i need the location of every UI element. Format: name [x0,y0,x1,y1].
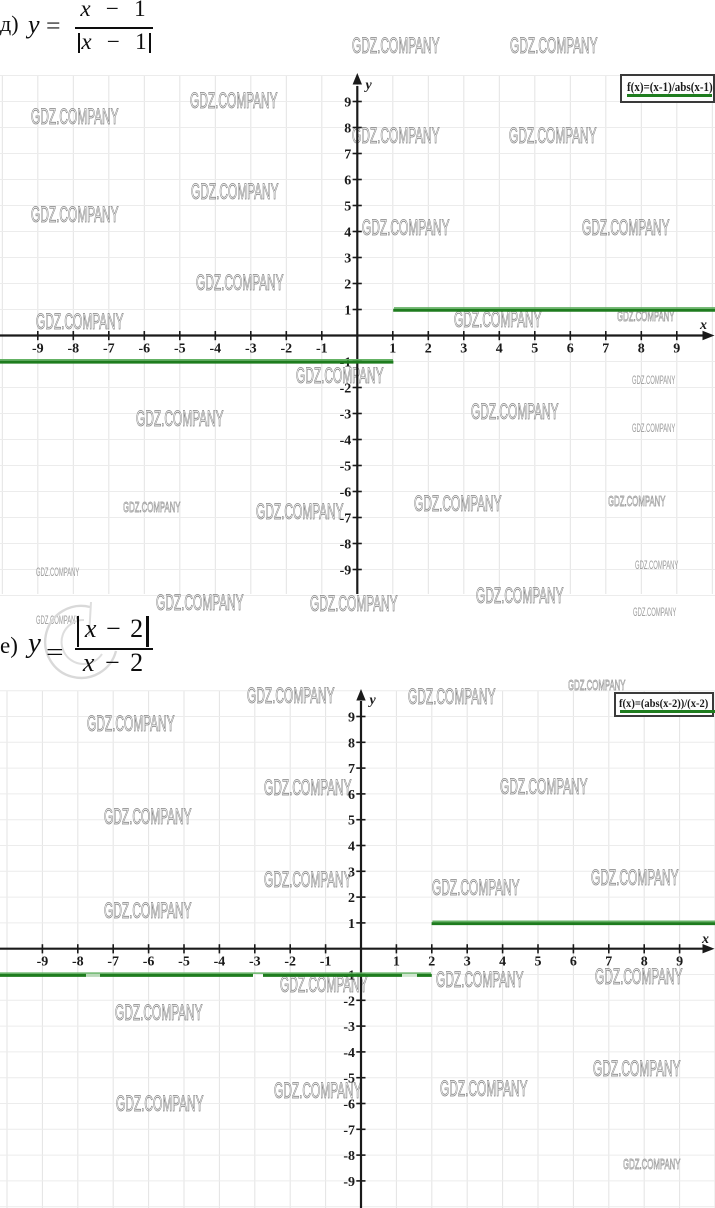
svg-text:6: 6 [570,955,577,970]
svg-text:2: 2 [425,342,432,357]
svg-text:4: 4 [496,342,503,357]
svg-text:-4: -4 [214,955,226,970]
svg-text:x: x [699,318,707,333]
svg-text:-6: -6 [340,486,352,501]
svg-text:2: 2 [428,955,435,970]
svg-text:4: 4 [344,226,351,241]
svg-text:-8: -8 [343,1149,355,1164]
svg-text:-7: -7 [343,1123,355,1138]
svg-text:-4: -4 [209,342,221,357]
svg-text:-2: -2 [280,342,292,357]
svg-text:5: 5 [344,200,351,215]
svg-text:3: 3 [460,342,467,357]
svg-text:-2: -2 [284,955,296,970]
svg-text:9: 9 [348,711,355,726]
svg-text:-4: -4 [343,1046,355,1061]
svg-text:-2: -2 [343,994,355,1009]
svg-text:8: 8 [638,342,645,357]
svg-text:-1: -1 [320,955,332,970]
svg-text:-4: -4 [340,434,352,449]
svg-text:-8: -8 [340,538,352,553]
svg-text:7: 7 [605,955,612,970]
svg-text:1: 1 [393,955,400,970]
svg-text:3: 3 [344,252,351,267]
svg-text:6: 6 [567,342,574,357]
svg-text:-3: -3 [343,1020,355,1035]
svg-text:-6: -6 [343,1098,355,1113]
svg-text:-2: -2 [340,382,352,397]
svg-text:5: 5 [531,342,538,357]
svg-text:-5: -5 [340,460,352,475]
svg-text:9: 9 [673,342,680,357]
svg-text:8: 8 [348,736,355,751]
svg-text:-3: -3 [249,955,261,970]
svg-text:4: 4 [348,840,355,855]
svg-text:-9: -9 [32,342,44,357]
svg-text:-9: -9 [343,1175,355,1190]
svg-text:-7: -7 [340,512,352,527]
svg-text:-6: -6 [138,342,150,357]
svg-text:1: 1 [344,304,351,319]
svg-text:1: 1 [348,917,355,932]
svg-text:3: 3 [348,865,355,880]
svg-text:2: 2 [348,891,355,906]
svg-text:7: 7 [602,342,609,357]
svg-text:5: 5 [348,814,355,829]
svg-text:-7: -7 [107,955,119,970]
svg-text:y: y [368,693,377,708]
svg-text:-3: -3 [245,342,257,357]
svg-text:3: 3 [464,955,471,970]
svg-text:-6: -6 [143,955,155,970]
svg-text:7: 7 [348,762,355,777]
svg-text:-5: -5 [174,342,186,357]
svg-text:9: 9 [676,955,683,970]
svg-text:8: 8 [641,955,648,970]
svg-text:x: x [701,932,709,947]
svg-text:-7: -7 [103,342,115,357]
svg-text:-5: -5 [178,955,190,970]
svg-text:2: 2 [344,278,351,293]
svg-text:-8: -8 [67,342,79,357]
svg-text:8: 8 [344,122,351,137]
svg-text:5: 5 [535,955,542,970]
svg-text:7: 7 [344,148,351,163]
svg-text:6: 6 [344,174,351,189]
svg-text:y: y [364,78,373,93]
svg-text:-3: -3 [340,408,352,423]
svg-text:-8: -8 [72,955,84,970]
svg-text:4: 4 [499,955,506,970]
svg-text:9: 9 [344,96,351,111]
svg-text:-5: -5 [343,1072,355,1087]
svg-text:-1: -1 [316,342,328,357]
svg-text:-9: -9 [37,955,49,970]
svg-text:1: 1 [389,342,396,357]
svg-text:-9: -9 [340,564,352,579]
svg-text:6: 6 [348,788,355,803]
